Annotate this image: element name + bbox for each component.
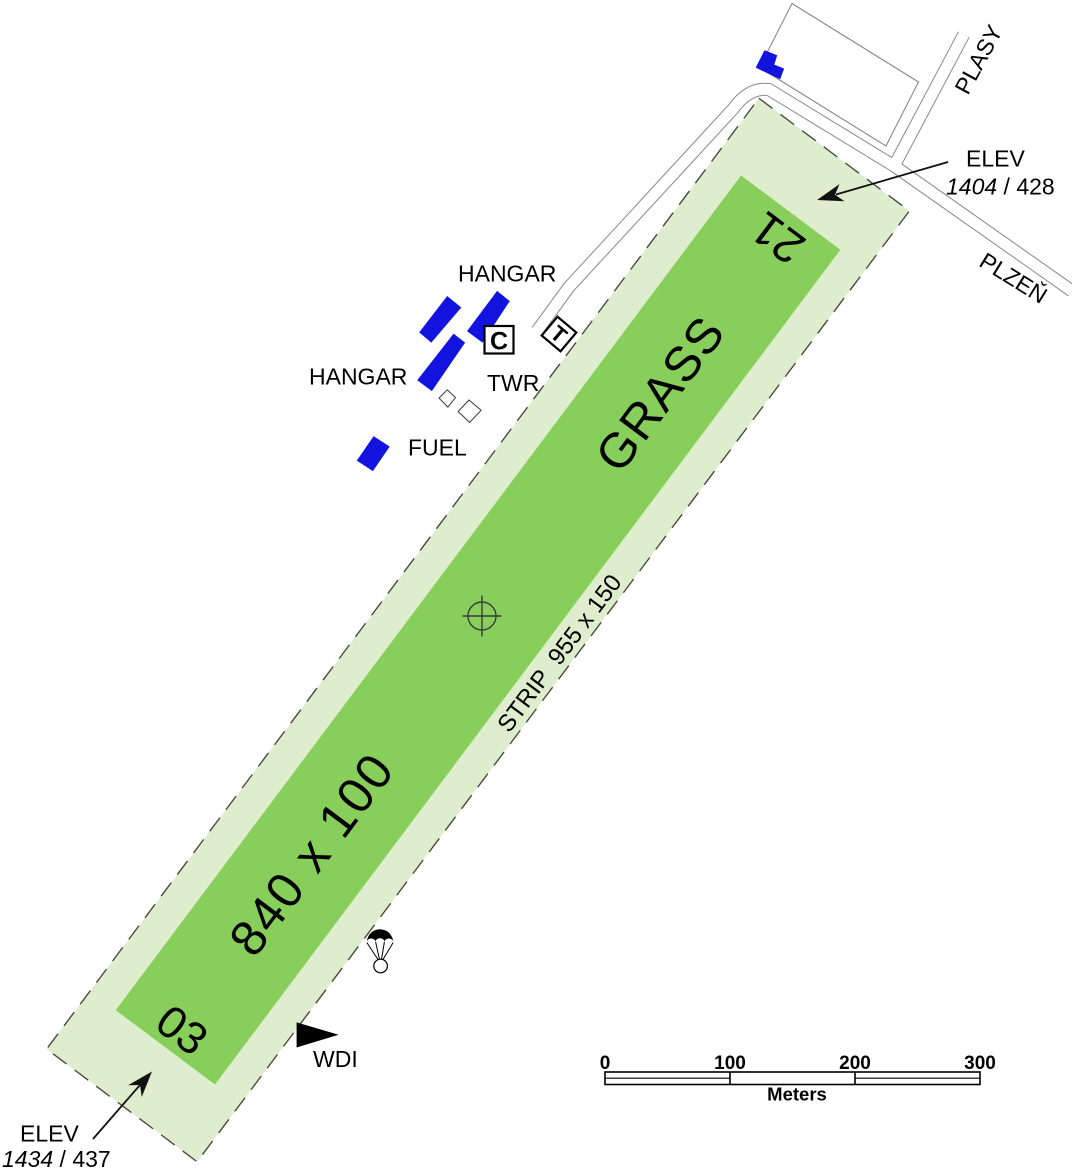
svg-text:ELEV: ELEV — [966, 146, 1025, 172]
svg-text:1404 / 428: 1404 / 428 — [946, 174, 1055, 200]
svg-text:200: 200 — [839, 1053, 871, 1074]
svg-text:TWR: TWR — [487, 370, 539, 396]
svg-text:FUEL: FUEL — [408, 435, 467, 461]
svg-text:HANGAR: HANGAR — [309, 364, 407, 390]
svg-text:100: 100 — [714, 1053, 746, 1074]
svg-text:Meters: Meters — [767, 1084, 827, 1105]
svg-text:C: C — [490, 328, 508, 356]
svg-text:300: 300 — [964, 1053, 996, 1074]
svg-text:1434 / 437: 1434 / 437 — [2, 1146, 111, 1172]
svg-text:0: 0 — [600, 1053, 611, 1074]
svg-text:WDI: WDI — [313, 1046, 358, 1072]
svg-text:HANGAR: HANGAR — [458, 261, 556, 287]
svg-text:ELEV: ELEV — [20, 1121, 79, 1147]
